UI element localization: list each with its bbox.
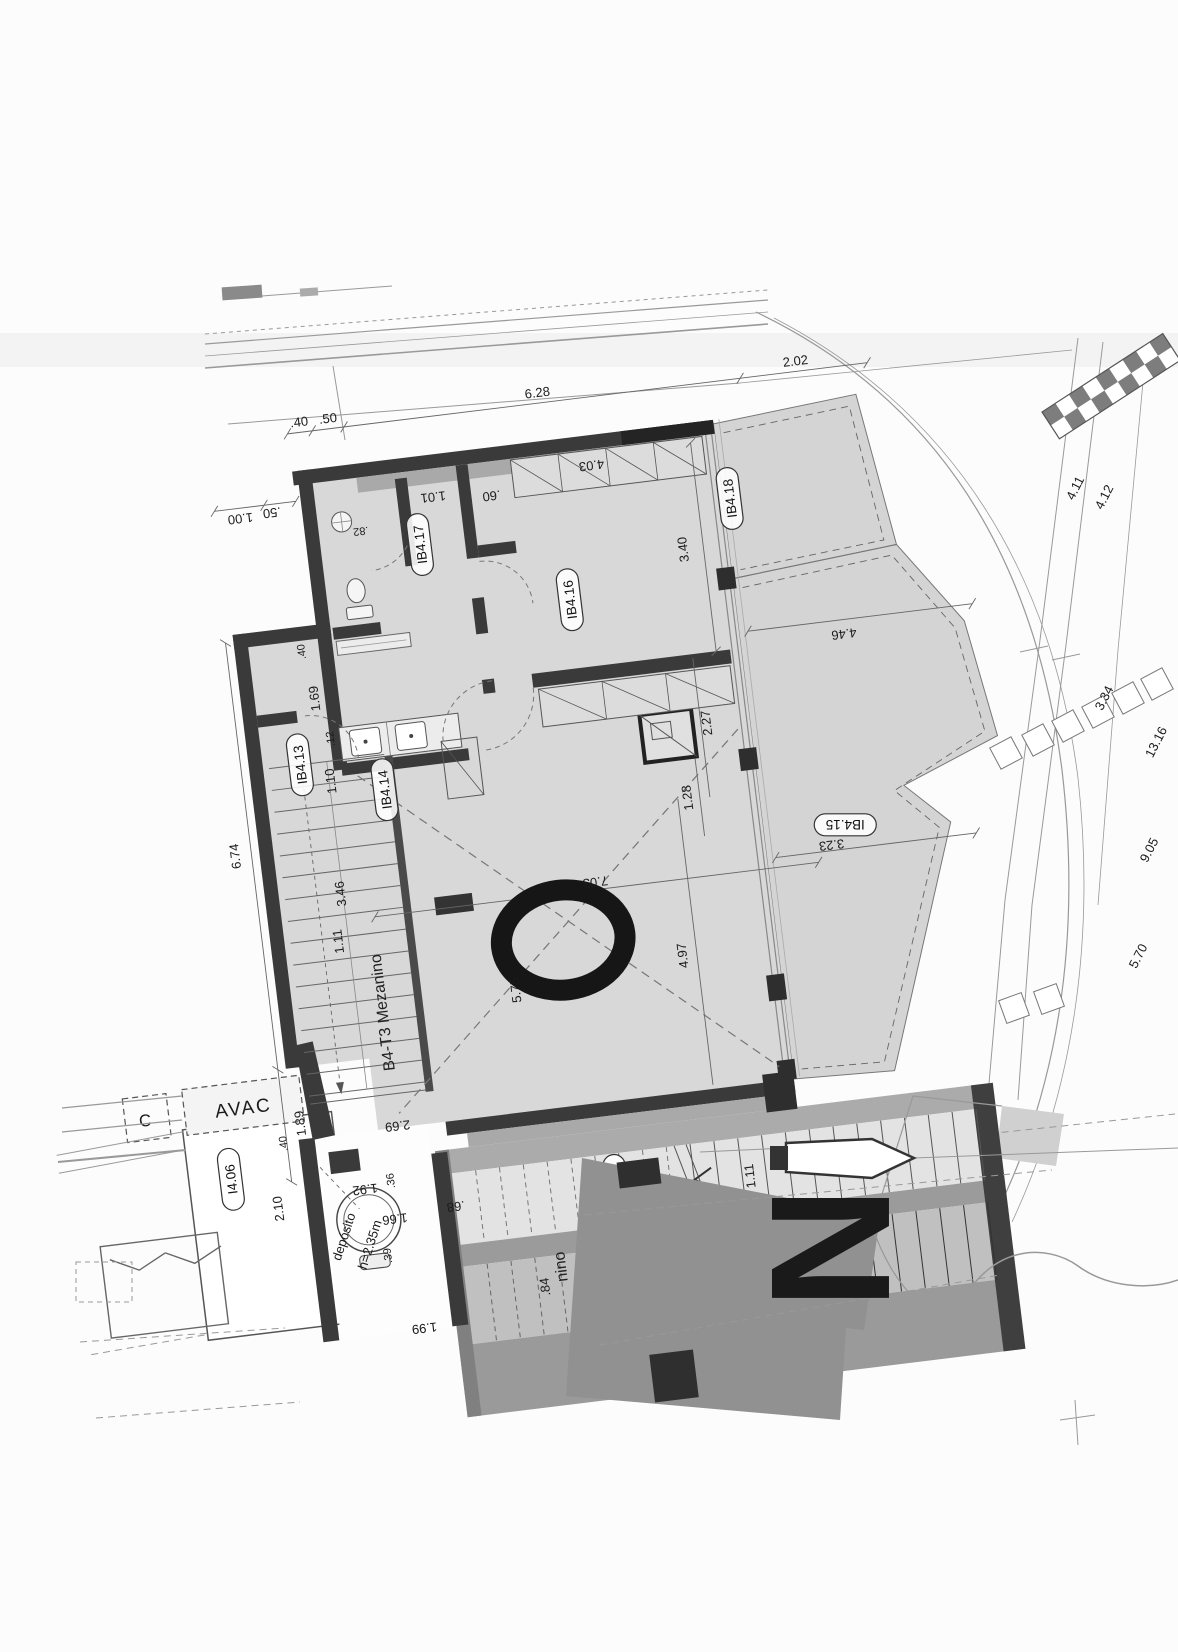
dim-703: 7.03 xyxy=(582,873,609,891)
dim-210: 2.10 xyxy=(269,1195,287,1222)
dim-403: 4.03 xyxy=(578,457,605,475)
dim-202: 2.02 xyxy=(782,352,809,370)
north-letter: N xyxy=(735,1187,925,1310)
dim-340: 3.40 xyxy=(674,536,692,563)
dim-s111: 1.11 xyxy=(329,928,347,954)
dim-323: 3.23 xyxy=(818,836,845,854)
duct-shaft xyxy=(639,709,696,763)
dim-100: 1.00 xyxy=(227,510,254,528)
dim-r111a: 1.11 xyxy=(741,1163,759,1189)
dim-128: 1.28 xyxy=(678,784,696,811)
dim-082: .82 xyxy=(352,524,369,538)
room-label-ib415: IB4.15 xyxy=(826,817,865,832)
dim-446: 4.46 xyxy=(831,625,858,643)
avac-label-partial: C xyxy=(138,1111,153,1131)
dim-060: .60 xyxy=(482,487,502,504)
dim-497: 4.97 xyxy=(674,942,692,969)
dim-w040: .40 xyxy=(295,643,309,660)
dim-068: .68 xyxy=(446,1198,466,1215)
dim-674: 6.74 xyxy=(226,843,244,870)
dim-346: 3.46 xyxy=(331,880,349,907)
dim-628: 6.28 xyxy=(524,384,551,402)
dim-169: 1.69 xyxy=(305,685,323,712)
dim-040: .40 xyxy=(289,413,309,430)
scanned-floor-plan-sheet: 4.11 4.12 3.34 13.16 9.05 5.70 xyxy=(0,0,1178,1652)
dim-084: .84 xyxy=(536,1277,553,1297)
dim-012: .12 xyxy=(324,731,338,748)
floor-plan-drawing: 4.11 4.12 3.34 13.16 9.05 5.70 xyxy=(0,0,1178,1652)
dim-166: 1.66 xyxy=(381,1210,408,1228)
dim-110: 1.10 xyxy=(322,768,340,795)
dim-l050: .50 xyxy=(262,504,282,521)
dim-036: .36 xyxy=(384,1172,398,1189)
dim-192: 1.92 xyxy=(352,1181,379,1199)
dim-227: 2.27 xyxy=(697,710,715,737)
dim-039: .39 xyxy=(381,1247,395,1264)
dim-b040: .40 xyxy=(277,1135,291,1152)
dim-199: 1.99 xyxy=(411,1319,438,1337)
dim-269: 2.69 xyxy=(384,1117,411,1135)
dim-101: 1.01 xyxy=(420,488,447,506)
dim-189: 1.89 xyxy=(291,1110,309,1137)
dim-050: .50 xyxy=(318,410,338,427)
road-block xyxy=(222,285,263,301)
dim-575: 5.75 xyxy=(506,977,524,1004)
